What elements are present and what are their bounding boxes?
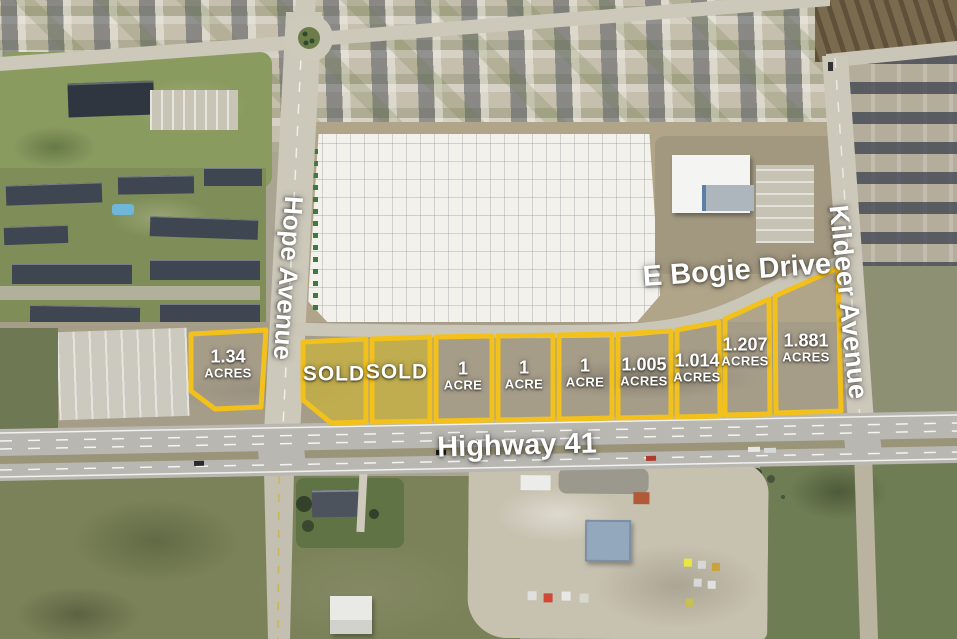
parcel-acreage: 1.881: [782, 331, 830, 350]
vehicle: [764, 448, 776, 453]
parcel-unit: ACRES: [782, 351, 830, 365]
parcel-label-lot-6: 1 ACRE: [566, 356, 604, 389]
road-west-of-roundabout: [0, 36, 288, 71]
road-east-of-roundabout: [330, 0, 830, 45]
aerial-lot-map: Hope Avenue E Bogie Drive Kildeer Avenue…: [0, 0, 957, 639]
parcel-label-lot-4: 1 ACRE: [444, 359, 482, 392]
roundabout-tree: [310, 39, 315, 44]
parcel-status: SOLD: [366, 362, 428, 385]
parcel-unit: ACRE: [444, 379, 482, 393]
parcel-label-lot-9: 1.207 ACRES: [721, 335, 769, 368]
vehicle: [194, 461, 204, 466]
parcel-label-lot-8: 1.014 ACRES: [673, 351, 721, 384]
parcel-acreage: 1: [505, 358, 543, 377]
roundabout-island: [298, 27, 320, 49]
roads-and-parcels-layer: [0, 0, 957, 639]
parcel-unit: ACRES: [721, 355, 769, 369]
parcel-unit: ACRES: [673, 371, 721, 385]
parcel-unit: ACRE: [566, 376, 604, 390]
parcel-acreage: 1.207: [721, 335, 769, 354]
roundabout-tree: [304, 41, 309, 46]
parcel-label-lot-2: SOLD: [303, 364, 365, 387]
vehicle: [646, 456, 656, 461]
parcel-unit: ACRES: [204, 367, 252, 381]
vehicle: [828, 62, 833, 71]
road-kildeer-south-track: [854, 452, 878, 639]
highway-intersection-hope: [258, 446, 306, 474]
parcel-label-lot-7: 1.005 ACRES: [620, 355, 668, 388]
roundabout-tree: [303, 32, 308, 37]
parcel-acreage: 1: [444, 359, 482, 378]
parcel-label-lot-3: SOLD: [366, 362, 428, 385]
parcel-label-lot-10: 1.881 ACRES: [782, 331, 830, 364]
parcel-acreage: 1: [566, 356, 604, 375]
parcel-label-lot-1: 1.34 ACRES: [204, 347, 252, 380]
parcel-acreage: 1.014: [673, 351, 721, 370]
parcel-status: SOLD: [303, 364, 365, 387]
vehicle: [748, 447, 760, 452]
street-label-highway-41: Highway 41: [437, 427, 597, 464]
parcel-label-lot-5: 1 ACRE: [505, 358, 543, 391]
parcel-acreage: 1.34: [204, 347, 252, 366]
parcel-acreage: 1.005: [620, 355, 668, 374]
parcel-unit: ACRES: [620, 375, 668, 389]
parcel-unit: ACRE: [505, 378, 543, 392]
